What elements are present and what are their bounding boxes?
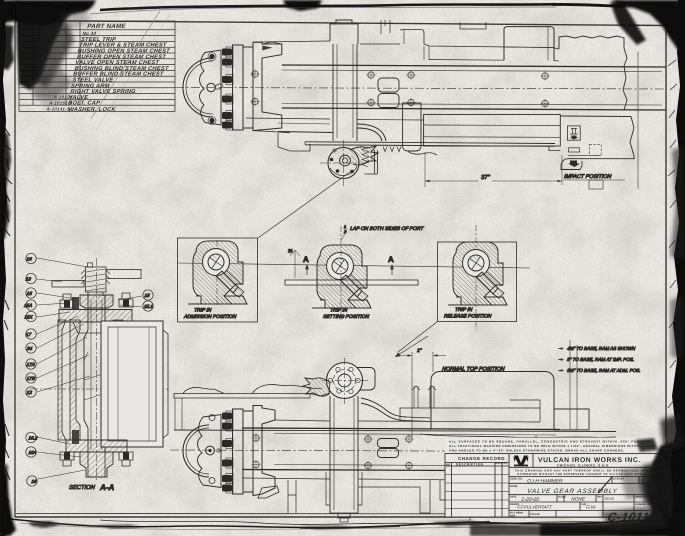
svg-text:TRIP IN: TRIP IN	[455, 307, 473, 313]
svg-text:LAP ON BOTH SIDES OF PORT: LAP ON BOTH SIDES OF PORT	[350, 226, 425, 232]
svg-text:G.W.: G.W.	[586, 505, 597, 510]
svg-text:37": 37"	[481, 174, 491, 181]
svg-text:ADMISSION POSITION: ADMISSION POSITION	[183, 314, 237, 320]
svg-text:RELEASE POSITION: RELEASE POSITION	[444, 314, 492, 320]
svg-text:PART NAME: PART NAME	[87, 23, 127, 30]
svg-text:ALL FRACTIONAL MACHINE DIMENSI: ALL FRACTIONAL MACHINE DIMENSIONS TO BE …	[449, 444, 656, 448]
svg-text:F.F.PULVERTAFT: F.F.PULVERTAFT	[517, 505, 553, 510]
svg-text:A: A	[388, 255, 394, 264]
svg-text:A-A: A-A	[99, 483, 114, 492]
svg-text:DESCRIPTION: DESCRIPTION	[456, 462, 483, 466]
svg-text:1-20-60: 1-20-60	[521, 497, 540, 503]
svg-text:BY: BY	[504, 462, 508, 465]
svg-text:1": 1"	[417, 348, 422, 354]
svg-text:DATE: DATE	[496, 462, 503, 465]
svg-text:VULCAN: VULCAN	[516, 464, 525, 467]
svg-text:31: 31	[288, 248, 293, 253]
svg-text:17A: 17A	[26, 362, 35, 367]
svg-text:CHICAGO, ILLINOIS, U.S.A.: CHICAGO, ILLINOIS, U.S.A.	[557, 464, 610, 468]
svg-text:SCALE: SCALE	[558, 496, 567, 499]
svg-text:SETTING POSITION: SETTING POSITION	[323, 314, 370, 320]
svg-text:BOLT, CAP: BOLT, CAP	[68, 101, 101, 107]
svg-text:WASHER, LOCK: WASHER, LOCK	[68, 107, 117, 113]
svg-text:No 10: No 10	[82, 31, 96, 36]
svg-text:A: A	[303, 255, 309, 264]
svg-text:4¼" TO BASE, RAM AS SHOWN: 4¼" TO BASE, RAM AS SHOWN	[567, 346, 636, 351]
svg-text:6¼" TO BASE, RAM AT ADM. POS.: 6¼" TO BASE, RAM AT ADM. POS.	[567, 368, 641, 373]
svg-text:ALL SURFACES TO BE SQUARE, PAR: ALL SURFACES TO BE SQUARE, PARALLEL, CON…	[449, 440, 653, 444]
svg-text:USED ON: USED ON	[510, 478, 522, 481]
svg-text:REV: REV	[597, 496, 602, 499]
svg-text:17B: 17B	[26, 376, 35, 381]
svg-text:TRACED: TRACED	[530, 513, 540, 516]
svg-text:NAME: NAME	[510, 485, 518, 488]
svg-text:CHANGE RECORD: CHANGE RECORD	[458, 456, 505, 461]
svg-text:SECTION: SECTION	[69, 484, 96, 491]
svg-text:SMP: SMP	[510, 515, 516, 518]
svg-text:TRIP IN: TRIP IN	[330, 308, 348, 314]
svg-text:TRIP IN: TRIP IN	[194, 308, 212, 314]
svg-text:O.I.H HAMMER: O.I.H HAMMER	[527, 478, 564, 484]
svg-text:16A: 16A	[28, 450, 37, 455]
svg-text:AND ANGLES TO BE ± 0°-30' UNLE: AND ANGLES TO BE ± 0°-30' UNLESS OTHERWI…	[449, 449, 624, 453]
svg-text:NORMAL TOP POSITION: NORMAL TOP POSITION	[442, 367, 505, 373]
svg-text:NO: NO	[446, 463, 450, 466]
svg-text:IMPACT POSITION: IMPACT POSITION	[564, 174, 612, 180]
svg-text:15A: 15A	[24, 303, 33, 308]
svg-text:707-B: 707-B	[604, 497, 614, 501]
svg-text:NONE: NONE	[571, 497, 587, 503]
svg-text:16.2: 16.2	[28, 436, 38, 441]
svg-text:5" TO BASE, RAM AT IMP. POS.: 5" TO BASE, RAM AT IMP. POS.	[567, 357, 635, 362]
svg-text:VALVE GEAR ASSEMBLY: VALVE GEAR ASSEMBLY	[527, 488, 618, 495]
svg-text:15.1: 15.1	[144, 304, 154, 309]
svg-text:DATE: DATE	[510, 496, 517, 499]
